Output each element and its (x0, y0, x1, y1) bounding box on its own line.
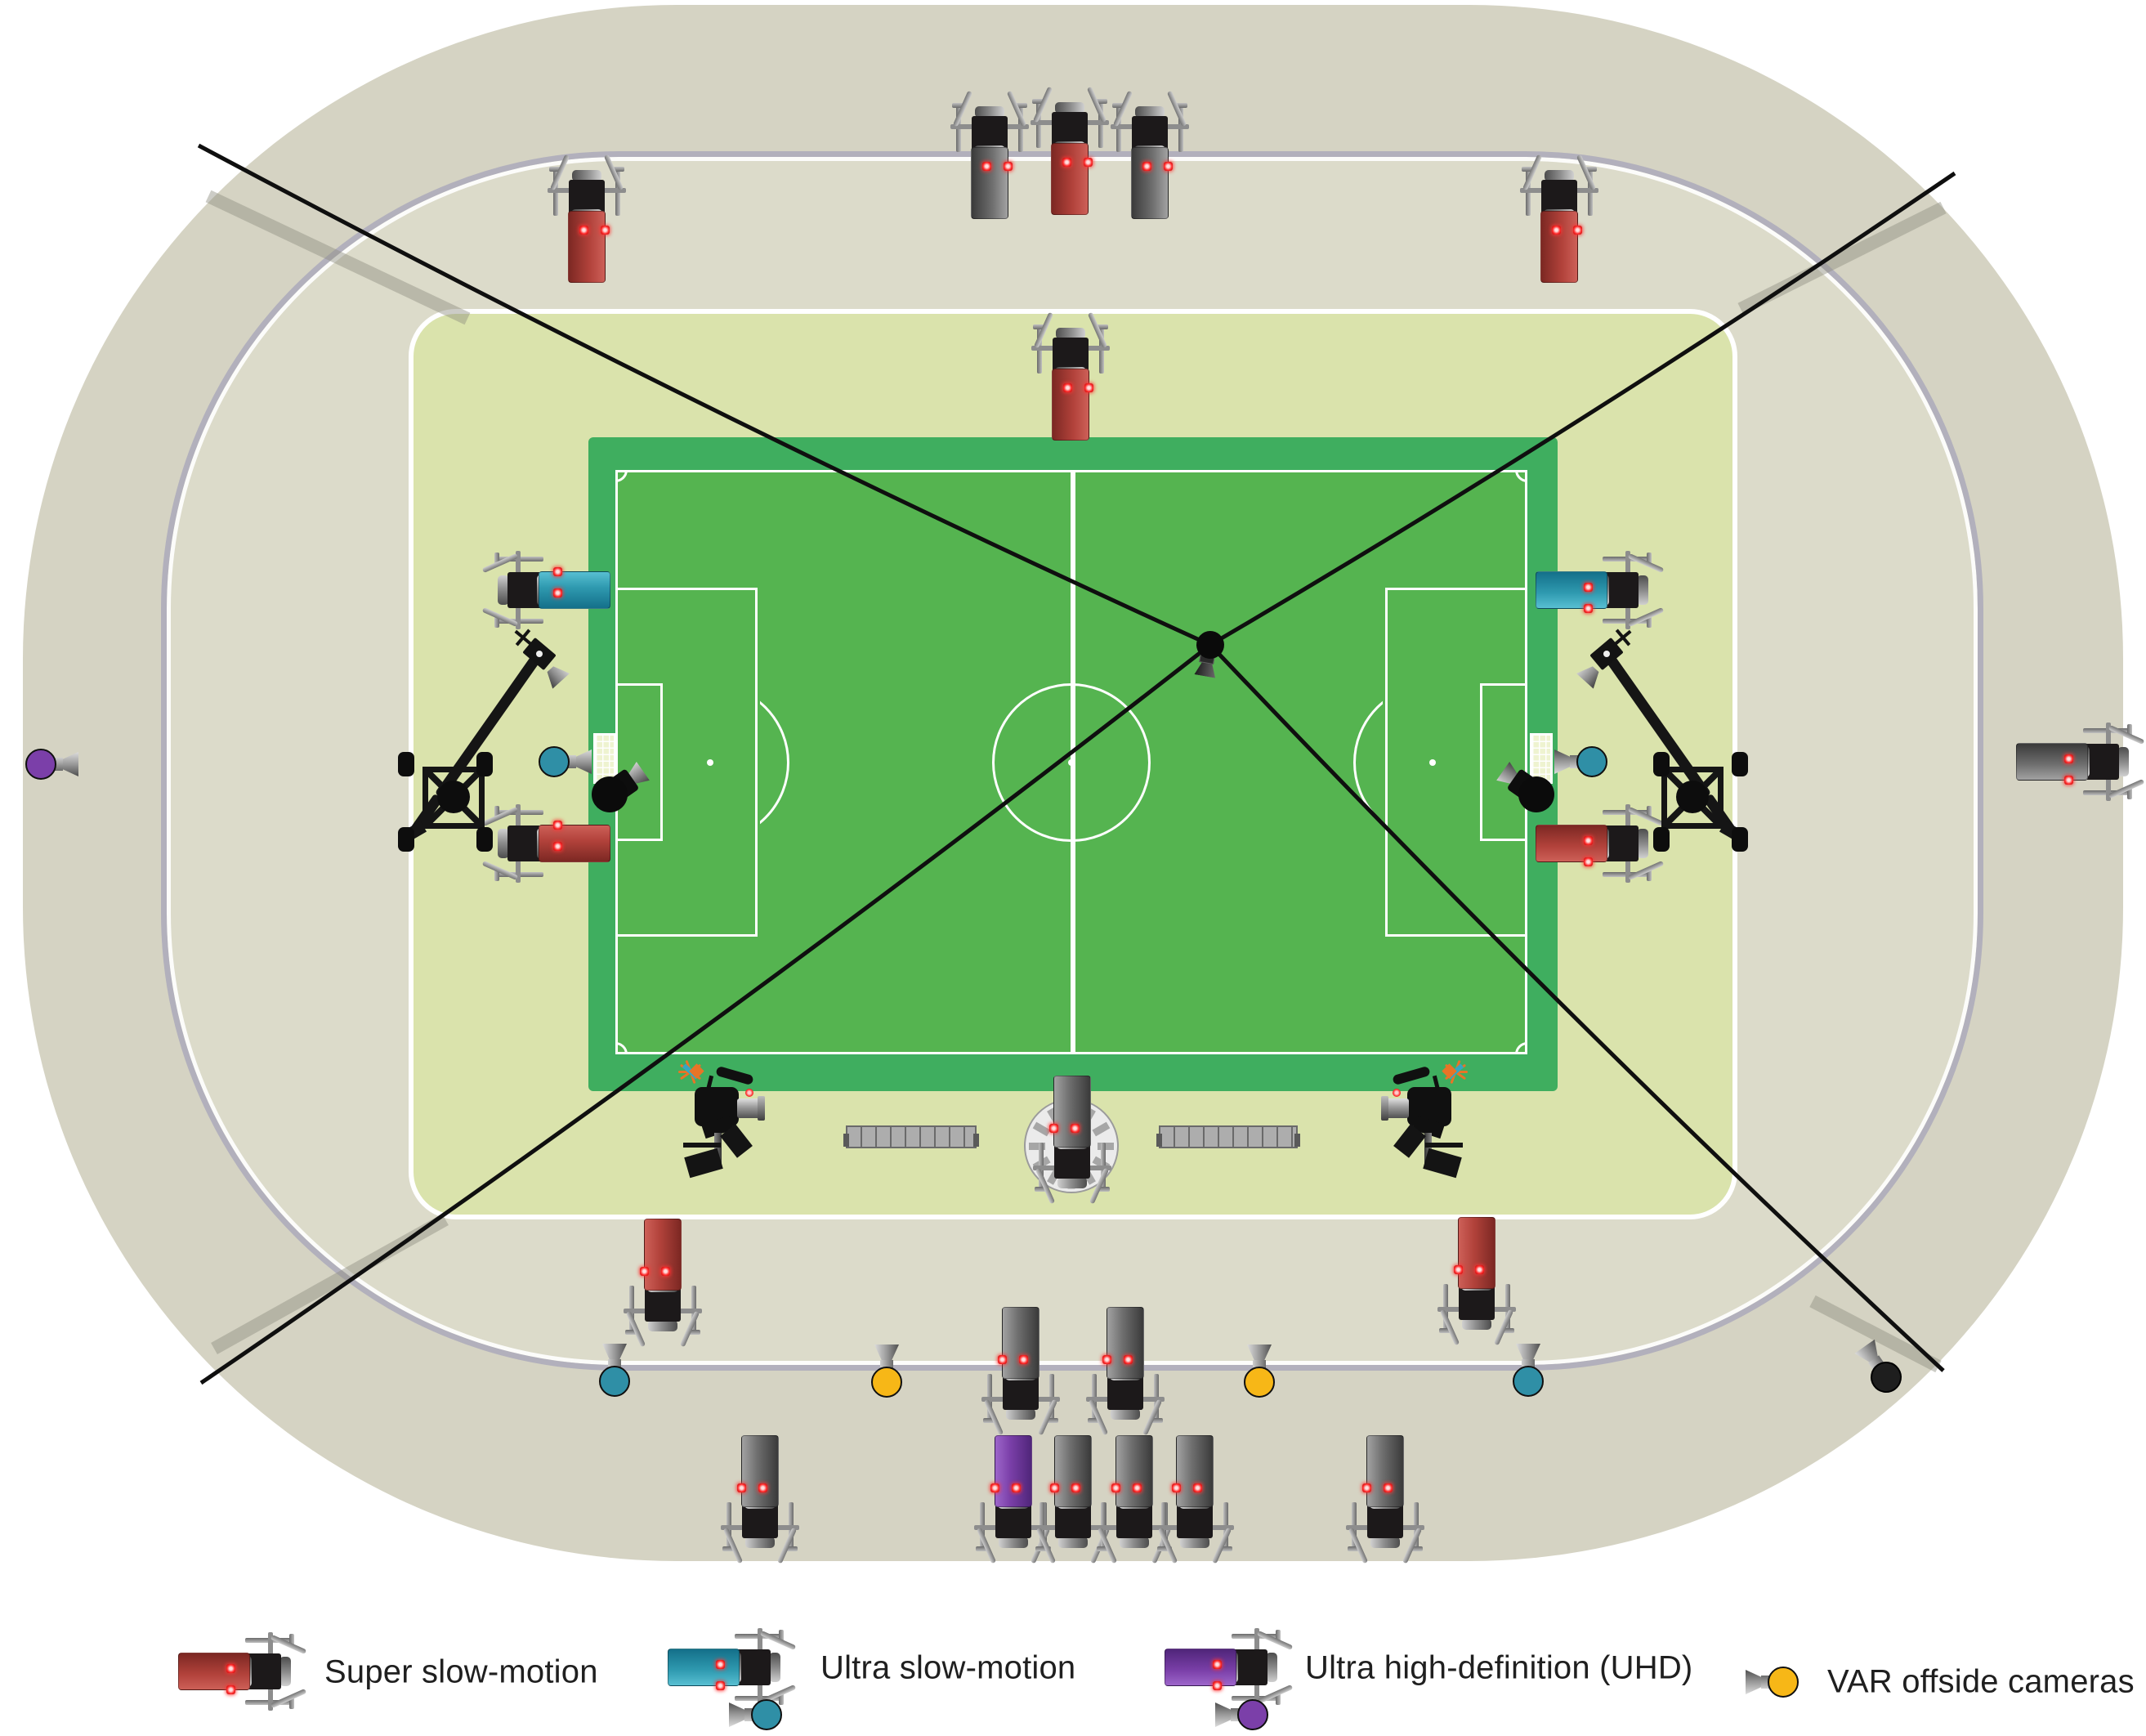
super-slow-motion-center-high (1044, 326, 1097, 441)
camera-hood (1053, 1076, 1091, 1148)
steadicam-lhood (758, 1096, 765, 1121)
super-slow-motion-top-center (1044, 101, 1096, 215)
cap-part (1266, 1653, 1277, 1682)
corner-arc-3 (1515, 1042, 1527, 1054)
tally-light (1063, 383, 1072, 392)
ultra-slow-motion-left (496, 564, 610, 616)
main-camera-right-stand (2016, 736, 2130, 788)
cap-part (2117, 747, 2129, 776)
h-part (1257, 1685, 1293, 1704)
corner-arcs (615, 470, 1527, 1054)
cap-part (1180, 1537, 1209, 1548)
camera-ball (599, 1366, 630, 1397)
steadicam-tally (1393, 1089, 1401, 1097)
cap-part (1120, 1537, 1149, 1548)
tally-light (982, 162, 991, 171)
tally-light (1004, 162, 1013, 171)
steadicam-xbar (1425, 1143, 1463, 1148)
tally-light (1584, 583, 1593, 592)
steadicam-pad2 (684, 1148, 723, 1179)
camera-hood (2016, 743, 2088, 781)
tally-light (2064, 754, 2073, 763)
tally-light (1133, 1483, 1142, 1492)
tally-light (1111, 1483, 1120, 1492)
tally-light (1584, 857, 1593, 866)
crane-pivot (437, 781, 470, 813)
tally-light (1573, 226, 1582, 235)
tally-light (758, 1483, 767, 1492)
super-slow-motion-top-left (561, 168, 613, 283)
tally-light (1142, 162, 1151, 171)
steadicam-vf (1392, 1066, 1431, 1085)
camera-hood (1054, 1435, 1092, 1507)
camera-ball (1513, 1366, 1544, 1397)
tally-light (1384, 1483, 1393, 1492)
crane-wheel (1653, 752, 1670, 776)
tally-light (1584, 604, 1593, 613)
camera-hood (1458, 1217, 1495, 1289)
tally-light (579, 226, 588, 235)
camera-ball (751, 1699, 782, 1730)
main-camera-outer-5 (1359, 1435, 1411, 1550)
jib-crane-left (392, 631, 588, 843)
steadicam-left (670, 1056, 776, 1179)
tally-light (1164, 162, 1173, 171)
crane-wheel (1732, 752, 1748, 776)
crane-hdot (536, 651, 543, 657)
cap-part (1057, 1177, 1087, 1188)
camera-hood (1366, 1435, 1404, 1507)
steadicam-pad2 (1423, 1148, 1462, 1179)
steadicam-vf (715, 1066, 754, 1085)
legend-label-super-slow-motion: Super slow-motion (324, 1654, 598, 1691)
corner-arc-2 (615, 1042, 628, 1054)
corner-arc-0 (615, 470, 628, 482)
steadicam-xbar (683, 1143, 721, 1148)
legend-label-ultra-slow-motion: Ultra slow-motion (820, 1650, 1075, 1687)
tally-light (716, 1681, 725, 1690)
tally-light (553, 567, 562, 576)
cap-part (279, 1657, 291, 1686)
camera-hood (1165, 1649, 1236, 1686)
camera-hood (568, 211, 606, 283)
camera-ball (1244, 1367, 1275, 1398)
legend-label-var: VAR offside cameras (1827, 1664, 2135, 1701)
main-camera-top-1 (963, 105, 1016, 219)
super-slow-motion-bottom-right (1451, 1217, 1503, 1331)
camera-hood (1002, 1307, 1039, 1379)
led-board-left (846, 1125, 977, 1148)
camera-hood (1131, 147, 1169, 219)
main-camera-line-1 (995, 1307, 1047, 1421)
tally-light (716, 1660, 725, 1669)
tally-light (226, 1685, 235, 1694)
camera-hood (1052, 369, 1089, 441)
cap-part (745, 1537, 775, 1548)
steadicam-right (1370, 1056, 1476, 1179)
tally-light (1213, 1681, 1222, 1690)
camera-hood (644, 1219, 682, 1291)
camera-ball (25, 749, 56, 780)
tally-light (1362, 1483, 1371, 1492)
super-slow-motion-bottom-left (637, 1219, 689, 1333)
tally-light (640, 1267, 649, 1276)
tally-light (1050, 1483, 1059, 1492)
camera-hood (1536, 571, 1607, 609)
tally-light (1049, 1124, 1058, 1133)
crane-hdot (1603, 651, 1610, 657)
camera-hood (1176, 1435, 1214, 1507)
cap-part (1058, 1537, 1088, 1548)
lens-cone-icon (1215, 1702, 1232, 1727)
legend-label-uhd: Ultra high-definition (UHD) (1305, 1650, 1692, 1687)
camera-ball (871, 1367, 902, 1398)
tally-light (2064, 776, 2073, 785)
main-camera-line-2 (1099, 1307, 1151, 1421)
cap-part (1006, 1408, 1035, 1420)
tally-light (1213, 1660, 1222, 1669)
h-part (270, 1689, 306, 1708)
super-slow-motion-top-right (1533, 168, 1585, 283)
main-camera-top-2 (1124, 105, 1176, 219)
crane-wheel (398, 752, 414, 776)
tally-light (998, 1355, 1007, 1364)
camera-ball (1768, 1667, 1799, 1698)
tally-light (737, 1483, 746, 1492)
legend-icon-super-slow-motion (178, 1645, 293, 1698)
tally-light (1071, 1483, 1080, 1492)
camera-hood (995, 1435, 1032, 1507)
tally-light (1102, 1355, 1111, 1364)
camera-hood (1115, 1435, 1153, 1507)
main-camera-outer-4 (1169, 1435, 1221, 1550)
cap-part (1111, 1408, 1140, 1420)
steadicam-lens (737, 1098, 760, 1118)
crane-wheel (476, 752, 493, 776)
cap-part (648, 1320, 677, 1331)
cap-part (999, 1537, 1028, 1548)
camera-hood (741, 1435, 779, 1507)
platform-camera (1046, 1076, 1098, 1190)
tally-light (1193, 1483, 1202, 1492)
led-board-right (1159, 1125, 1298, 1148)
legend-icon-uhd (1165, 1641, 1279, 1693)
tally-light (1172, 1483, 1181, 1492)
cap-part (769, 1653, 780, 1682)
camera-hood (539, 571, 610, 609)
tally-light (1012, 1483, 1021, 1492)
camera-hood (1107, 1307, 1144, 1379)
corner-arc-1 (1515, 470, 1527, 482)
tally-light (1454, 1265, 1463, 1274)
platform-spoke (1098, 1143, 1114, 1150)
cap-part (1462, 1318, 1491, 1330)
tally-light (1019, 1355, 1028, 1364)
crane-wheel (1732, 827, 1748, 852)
tally-light (1124, 1355, 1133, 1364)
lens-cone-icon (729, 1702, 746, 1727)
steadicam-tally (745, 1089, 753, 1097)
camera-hood (971, 147, 1008, 219)
tally-light (553, 588, 562, 597)
tally-light (1084, 383, 1093, 392)
tally-light (1071, 1124, 1080, 1133)
stadium-camera-plan-diagram: Super slow-motion Ultra slow-motion Ultr… (0, 0, 2146, 1736)
crane-wheel (1653, 827, 1670, 852)
main-camera-outer-1 (734, 1435, 786, 1550)
ultra-slow-motion-right (1536, 564, 1650, 616)
camera-hood (1051, 143, 1089, 215)
uhd-camera (987, 1435, 1039, 1550)
tally-light (1552, 226, 1561, 235)
tally-light (990, 1483, 999, 1492)
tally-light (226, 1664, 235, 1673)
main-camera-outer-3 (1108, 1435, 1160, 1550)
tally-light (601, 226, 610, 235)
tally-light (1084, 158, 1093, 167)
camera-hood (178, 1653, 250, 1690)
cap-part (1370, 1537, 1400, 1548)
crane-wheel (476, 827, 493, 852)
main-camera-outer-2 (1047, 1435, 1099, 1550)
tally-light (1475, 1265, 1484, 1274)
camera-hood (668, 1649, 740, 1686)
camera-ball (1237, 1699, 1268, 1730)
jib-crane-right (1558, 631, 1754, 843)
steadicam-lens (1386, 1098, 1409, 1118)
tally-light (1062, 158, 1071, 167)
crane-wheel (398, 827, 414, 852)
camera-hood (1540, 211, 1578, 283)
tally-light (661, 1267, 670, 1276)
lens-cone-icon (1746, 1670, 1763, 1694)
steadicam-lhood (1381, 1096, 1388, 1121)
cap-part (1637, 575, 1648, 605)
legend-icon-ultra-slow-motion (668, 1641, 782, 1693)
crane-pivot (1676, 781, 1709, 813)
